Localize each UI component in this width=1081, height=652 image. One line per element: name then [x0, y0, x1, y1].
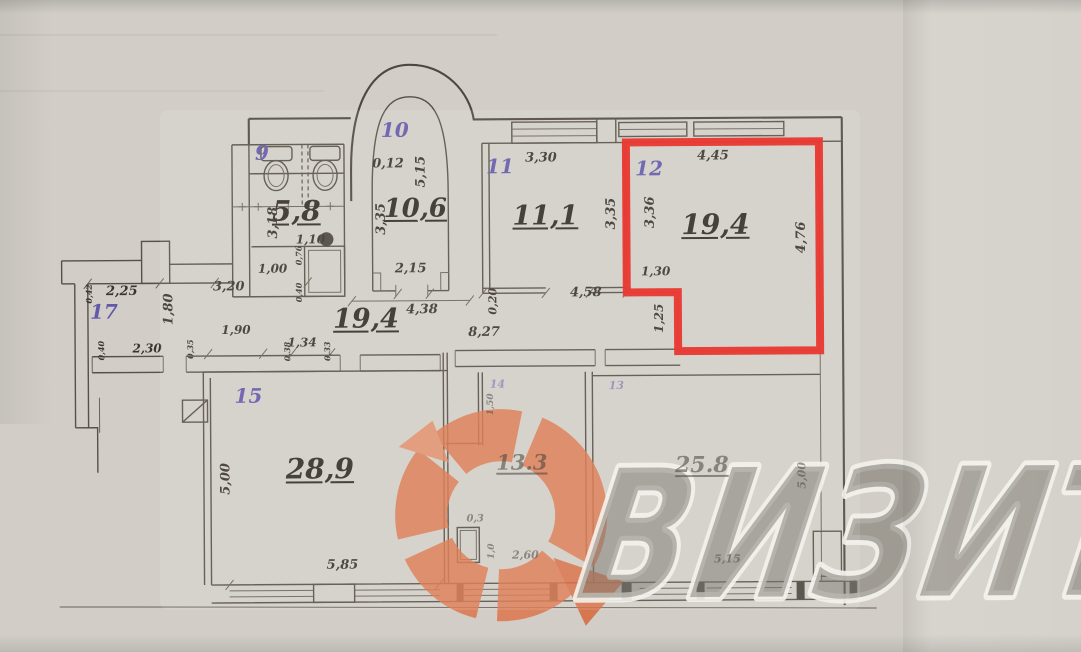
dimension-label: 4,76 [795, 222, 808, 254]
dimension-label: 5,00 [796, 462, 807, 489]
area-label: 11,1 [512, 202, 578, 229]
dimension-label: 2,60 [512, 550, 539, 561]
dimension-label: 0,38 [283, 342, 291, 362]
area-label: 13.3 [496, 451, 547, 472]
room-number-label: 14 [490, 379, 505, 390]
room-number-label: 12 [635, 158, 663, 178]
floor-plan: ВИЗИТ 9101112151714135,810,611,119,419,4… [0, 0, 1081, 652]
area-label: 25.8 [675, 454, 729, 476]
dimension-label: 3,35 [375, 203, 388, 235]
dimension-label: 0,33 [323, 342, 331, 362]
scanned-floor-plan-photo: ВИЗИТ 9101112151714135,810,611,119,419,4… [0, 0, 1081, 652]
dimension-label: 2,30 [132, 342, 161, 354]
dimension-label: 1,90 [221, 324, 250, 336]
area-label: 19,4 [681, 211, 749, 239]
dimension-label: 1,00 [258, 263, 287, 275]
dimension-label: 8,27 [468, 326, 500, 339]
dimension-label: 5,15 [714, 553, 741, 564]
area-label: 19,4 [333, 305, 399, 332]
dimension-label: 3,30 [525, 151, 557, 164]
dimension-label: 4,38 [406, 303, 438, 316]
dimension-label: 0,42 [85, 284, 93, 304]
dimension-label: 3,36 [644, 196, 657, 228]
dimension-label: 2,15 [395, 262, 427, 275]
dimension-label: 0,40 [97, 341, 105, 361]
dimension-label: 3,35 [605, 198, 618, 230]
dimension-label: 1,25 [653, 304, 665, 333]
dimension-label: 2,25 [106, 285, 138, 298]
dimension-label: 0,12 [372, 157, 404, 170]
room-number-label: 17 [90, 302, 118, 322]
dimension-label: 1,50 [487, 393, 496, 415]
room-number-label: 15 [234, 386, 262, 406]
room-number-label: 11 [486, 156, 514, 176]
room-number-label: 10 [381, 120, 409, 140]
dimension-label: 5,15 [414, 156, 427, 188]
dimension-label: 5,00 [219, 463, 232, 495]
area-label: 10,6 [384, 196, 447, 222]
dimension-label: 1,0 [488, 543, 497, 559]
room-number-label: 13 [609, 380, 624, 391]
dimension-label: 3,20 [213, 280, 245, 293]
room-number-label: 9 [255, 143, 269, 163]
dimension-label: 0,35 [186, 339, 194, 359]
dimension-label: 3,18 [267, 207, 280, 239]
plan-labels-layer: 9101112151714135,810,611,119,419,428,913… [0, 0, 1081, 652]
dimension-label: 5,85 [327, 559, 359, 572]
dimension-label: 4,58 [570, 286, 602, 299]
dimension-label: 1,30 [641, 265, 670, 277]
dimension-label: 0,20 [487, 288, 498, 315]
dimension-label: 0,76 [295, 246, 303, 266]
dimension-label: 0,3 [466, 514, 483, 524]
dimension-label: 4,45 [697, 149, 729, 162]
dimension-label: 1,80 [162, 293, 175, 325]
area-label: 28,9 [286, 455, 354, 483]
dimension-label: 1,10 [296, 233, 325, 245]
dimension-label: 0,40 [295, 283, 303, 303]
